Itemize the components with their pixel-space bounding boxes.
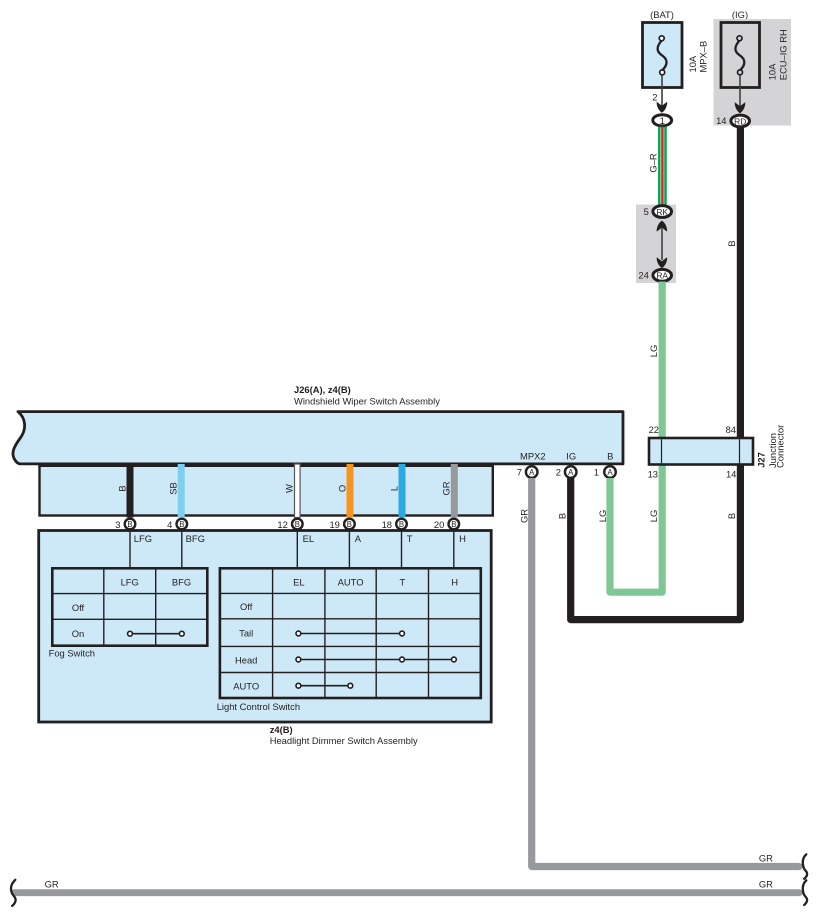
svg-text:J26(A), z4(B): J26(A), z4(B) xyxy=(294,384,351,395)
svg-text:RK: RK xyxy=(656,207,668,217)
svg-text:10A: 10A xyxy=(687,55,698,72)
svg-text:2: 2 xyxy=(556,466,561,477)
svg-text:ECU–IG RH: ECU–IG RH xyxy=(777,29,788,80)
svg-text:(BAT): (BAT) xyxy=(650,9,674,20)
svg-text:On: On xyxy=(72,628,85,639)
svg-text:LFG: LFG xyxy=(134,533,152,544)
svg-text:H: H xyxy=(451,577,458,588)
svg-text:LG: LG xyxy=(597,510,608,523)
svg-text:19: 19 xyxy=(329,519,339,530)
svg-text:SB: SB xyxy=(168,482,179,495)
svg-text:1: 1 xyxy=(660,115,665,126)
svg-text:84: 84 xyxy=(726,424,736,435)
svg-text:B: B xyxy=(556,513,567,519)
svg-text:13: 13 xyxy=(648,469,658,480)
svg-text:T: T xyxy=(400,577,406,588)
svg-text:B: B xyxy=(295,520,300,529)
svg-text:LG: LG xyxy=(648,510,659,523)
svg-text:MPX–B: MPX–B xyxy=(698,41,709,73)
svg-text:AUTO: AUTO xyxy=(338,577,364,588)
svg-text:Off: Off xyxy=(72,602,85,613)
svg-text:GR: GR xyxy=(45,878,59,889)
svg-text:(IG): (IG) xyxy=(732,9,748,20)
svg-text:AUTO: AUTO xyxy=(233,680,259,691)
svg-text:Light Control Switch: Light Control Switch xyxy=(217,701,300,712)
svg-text:B: B xyxy=(399,520,404,529)
svg-text:W: W xyxy=(283,484,294,493)
svg-text:24: 24 xyxy=(638,270,648,281)
svg-text:LG: LG xyxy=(648,345,659,358)
svg-text:O: O xyxy=(336,485,347,492)
svg-text:J27: J27 xyxy=(756,452,767,468)
svg-text:A: A xyxy=(568,468,574,477)
svg-text:RD: RD xyxy=(734,116,746,126)
svg-text:Fog Switch: Fog Switch xyxy=(49,647,95,658)
svg-text:B: B xyxy=(127,520,132,529)
svg-text:B: B xyxy=(726,513,737,519)
svg-text:14: 14 xyxy=(726,469,736,480)
svg-text:18: 18 xyxy=(382,519,392,530)
svg-text:B: B xyxy=(347,520,352,529)
svg-text:20: 20 xyxy=(434,519,444,530)
svg-text:5: 5 xyxy=(644,206,649,217)
svg-text:H: H xyxy=(459,533,466,544)
svg-text:12: 12 xyxy=(277,519,287,530)
svg-text:GR: GR xyxy=(519,509,530,523)
svg-text:B: B xyxy=(179,520,184,529)
svg-text:Off: Off xyxy=(240,601,253,612)
svg-text:B: B xyxy=(607,451,613,462)
svg-text:GR: GR xyxy=(759,852,773,863)
svg-text:2: 2 xyxy=(652,92,657,103)
svg-text:B: B xyxy=(451,520,456,529)
svg-text:10A: 10A xyxy=(767,63,778,80)
svg-text:G–R: G–R xyxy=(648,153,659,173)
svg-text:14: 14 xyxy=(716,115,726,126)
svg-text:3: 3 xyxy=(115,519,120,530)
svg-text:Connector: Connector xyxy=(774,425,785,468)
svg-text:BFG: BFG xyxy=(172,577,191,588)
svg-text:MPX2: MPX2 xyxy=(520,451,546,462)
svg-text:A: A xyxy=(529,468,535,477)
svg-text:LFG: LFG xyxy=(121,577,139,588)
svg-text:1: 1 xyxy=(594,466,599,477)
svg-text:EL: EL xyxy=(303,533,314,544)
svg-text:BFG: BFG xyxy=(186,533,205,544)
svg-text:Head: Head xyxy=(235,654,257,665)
svg-text:Tail: Tail xyxy=(239,628,253,639)
svg-text:T: T xyxy=(407,533,413,544)
svg-text:IG: IG xyxy=(566,451,576,462)
svg-text:L: L xyxy=(388,486,399,491)
svg-text:Headlight Dimmer Switch Assemb: Headlight Dimmer Switch Assembly xyxy=(270,735,418,746)
svg-text:B: B xyxy=(116,485,127,491)
svg-text:B: B xyxy=(726,240,737,246)
svg-text:A: A xyxy=(355,533,362,544)
svg-text:GR: GR xyxy=(759,878,773,889)
svg-text:z4(B): z4(B) xyxy=(270,724,293,735)
svg-text:RA: RA xyxy=(656,271,668,281)
svg-text:EL: EL xyxy=(293,577,304,588)
svg-text:22: 22 xyxy=(649,424,659,435)
svg-text:7: 7 xyxy=(517,466,522,477)
svg-text:A: A xyxy=(607,468,613,477)
svg-text:4: 4 xyxy=(167,519,172,530)
svg-text:Windshield Wiper Switch Assemb: Windshield Wiper Switch Assembly xyxy=(294,396,440,407)
svg-text:GR: GR xyxy=(441,481,452,495)
